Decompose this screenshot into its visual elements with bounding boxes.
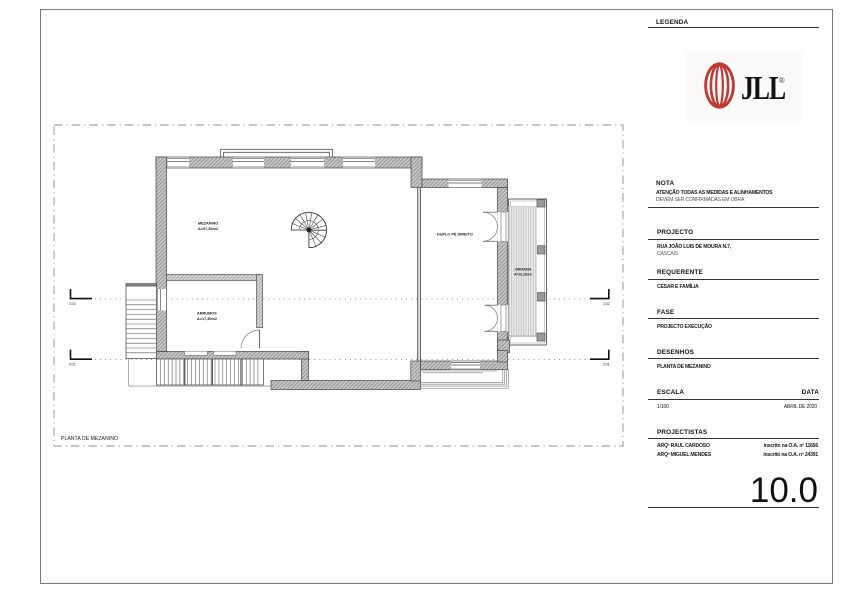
svg-text:A=97,30m2: A=97,30m2: [198, 227, 218, 231]
svg-text:C03: C03: [69, 302, 76, 306]
svg-text:PLANTA DE MEZANINO: PLANTA DE MEZANINO: [61, 436, 118, 442]
svg-text:MEZANINO: MEZANINO: [198, 222, 218, 226]
svg-text:C01: C01: [603, 363, 610, 367]
svg-text:VARANDA: VARANDA: [515, 268, 532, 272]
svg-text:A=10,10m2: A=10,10m2: [514, 273, 532, 277]
svg-text:ARRUMOS: ARRUMOS: [197, 312, 217, 316]
svg-text:DUPLO PÉ DIREITO: DUPLO PÉ DIREITO: [437, 232, 473, 237]
svg-text:C02: C02: [603, 302, 610, 306]
svg-text:C01: C01: [69, 363, 76, 367]
svg-text:A=17,30m2: A=17,30m2: [197, 317, 217, 321]
